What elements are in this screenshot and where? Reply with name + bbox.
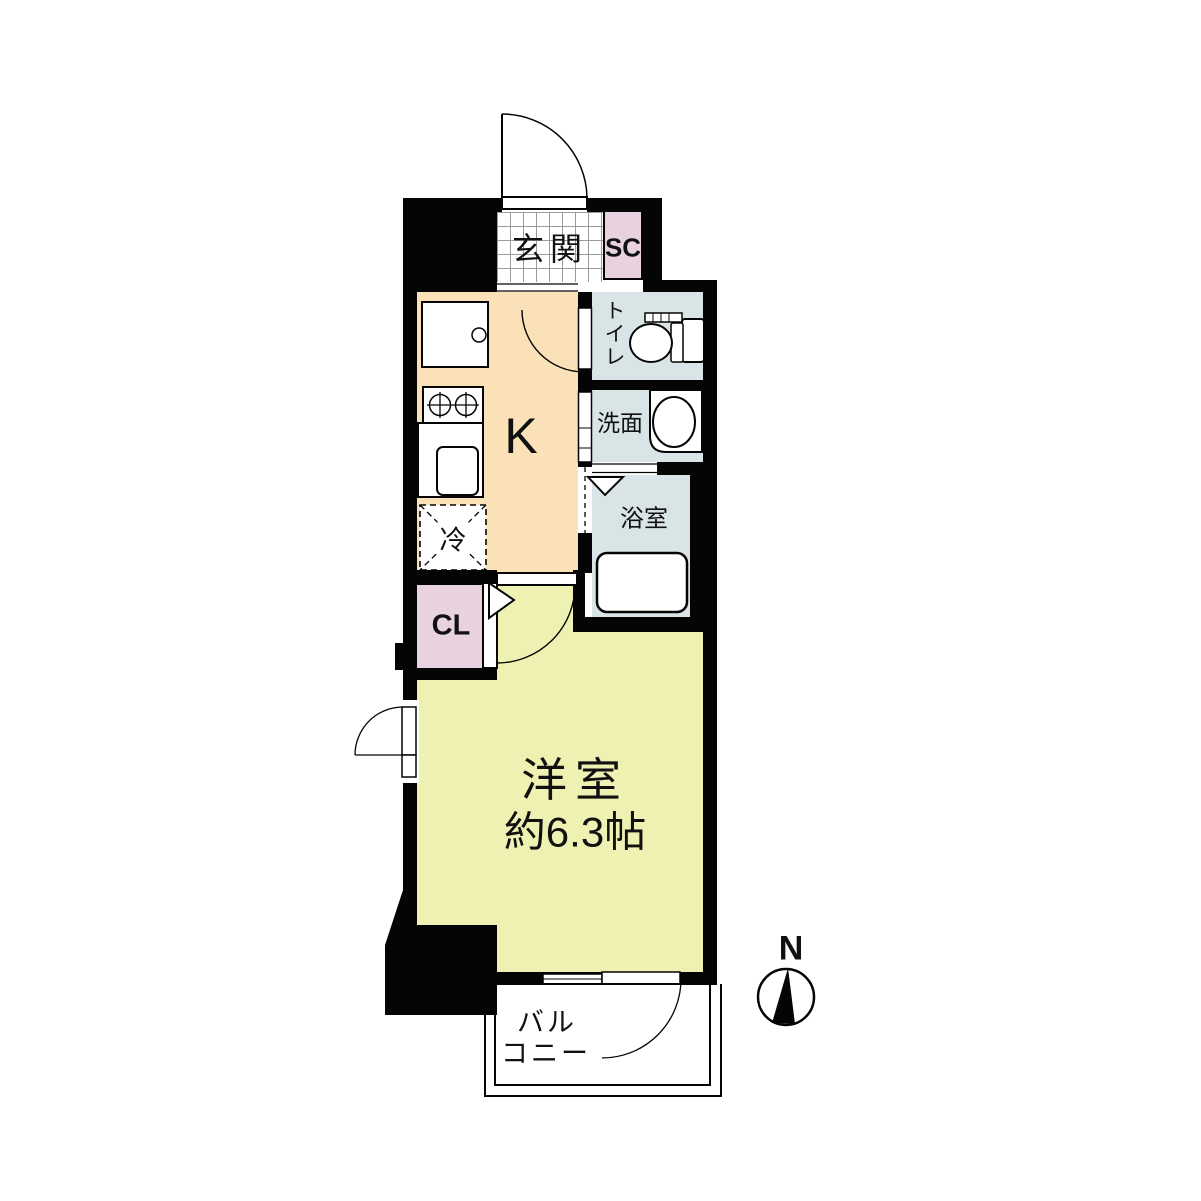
washroom-door-icon xyxy=(579,392,592,462)
bathroom-label: 浴室 xyxy=(620,499,668,534)
western-room-size-label: 約6.3帖 xyxy=(504,799,646,860)
shoe-closet-label: SC xyxy=(605,233,641,264)
bathroom-threshold-lines xyxy=(592,464,657,473)
toilet-label: トイレ xyxy=(598,300,628,369)
kitchen-sink-icon xyxy=(418,423,483,497)
refrigerator-label: 冷 xyxy=(438,519,469,558)
vanity-sink-icon xyxy=(650,390,702,452)
toilet-icon xyxy=(630,313,704,362)
closet-label: CL xyxy=(432,610,471,643)
entrance-step-lines xyxy=(497,284,578,291)
main-room-door-icon xyxy=(489,573,577,663)
floor-plan: 玄関 SC トイレ 洗面 浴室 K 冷 CL 洋室 約6.3帖 バル コニー N xyxy=(0,0,1201,1201)
washroom-label: 洗面 xyxy=(597,404,643,438)
north-label: N xyxy=(779,930,804,969)
kitchen-label: K xyxy=(504,407,537,465)
bathroom-door-icon xyxy=(588,477,623,495)
wall-block-bottom-left xyxy=(385,890,497,1015)
washer-pan-icon xyxy=(422,302,488,367)
entrance-door-icon xyxy=(502,114,587,209)
fixtures-layer xyxy=(0,0,1201,1201)
balcony-label-line2: コニー xyxy=(501,1032,591,1071)
window-icon xyxy=(355,700,419,783)
stove-icon xyxy=(423,387,483,423)
compass-icon xyxy=(758,968,814,1025)
kitchen-door-icon xyxy=(522,308,592,372)
bathtub-icon xyxy=(597,553,687,612)
entrance-label: 玄関 xyxy=(512,224,588,270)
